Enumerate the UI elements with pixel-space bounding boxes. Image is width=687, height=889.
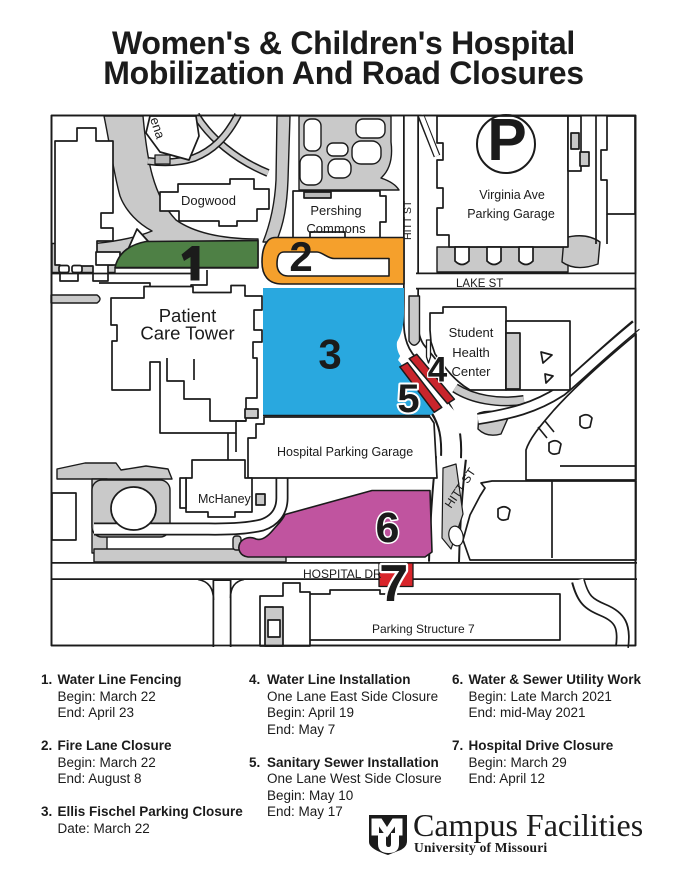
svg-text:Dogwood: Dogwood [181,193,236,208]
svg-text:4: 4 [428,351,448,390]
svg-text:6: 6 [376,504,400,552]
svg-text:LAKE ST: LAKE ST [456,278,503,290]
svg-text:Parking Structure 7: Parking Structure 7 [372,622,475,636]
svg-text:Pershing: Pershing [310,203,361,218]
svg-text:P: P [487,107,526,173]
svg-text:7: 7 [379,555,408,613]
svg-text:HITT ST: HITT ST [402,200,414,240]
svg-text:Care Tower: Care Tower [140,323,234,344]
svg-text:Center: Center [451,364,491,379]
svg-text:HOSPITAL DR: HOSPITAL DR [303,567,382,581]
svg-text:3: 3 [318,331,341,378]
svg-text:2: 2 [289,233,312,280]
svg-text:McHaney: McHaney [198,492,252,506]
svg-text:Student: Student [449,325,494,340]
svg-text:Parking Garage: Parking Garage [467,207,555,221]
svg-text:Commons: Commons [306,221,366,236]
svg-text:5: 5 [397,377,419,421]
svg-text:Health: Health [452,345,490,360]
svg-text:Hospital Parking Garage: Hospital Parking Garage [277,445,413,459]
svg-text:Virginia Ave: Virginia Ave [479,188,545,202]
